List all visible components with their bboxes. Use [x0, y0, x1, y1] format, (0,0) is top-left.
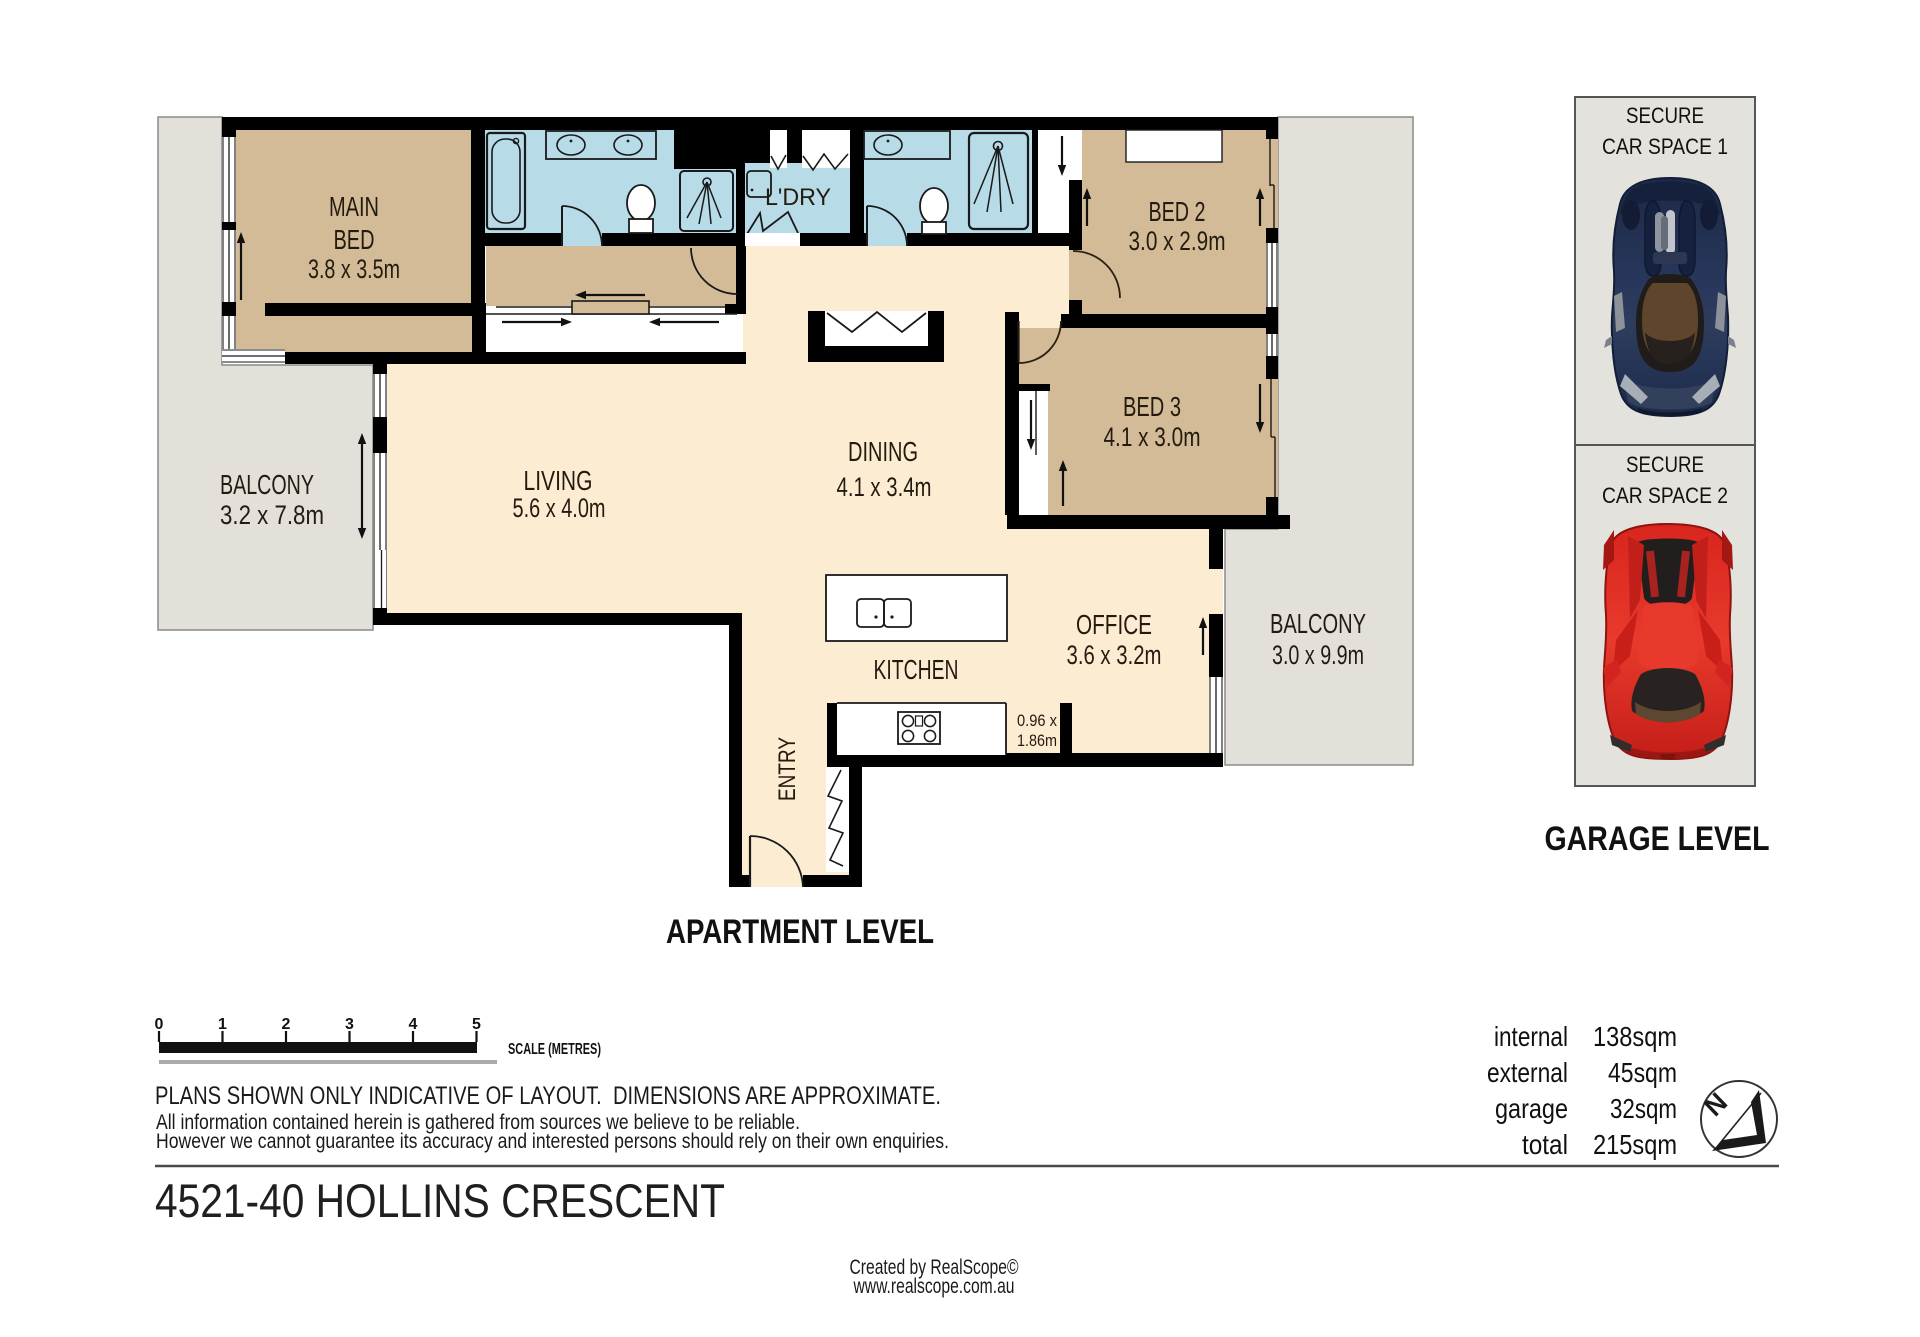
svg-text:3.0 x 2.9m: 3.0 x 2.9m	[1129, 226, 1226, 256]
svg-text:PLANS SHOWN ONLY INDICATIVE OF: PLANS SHOWN ONLY INDICATIVE OF LAYOUT. D…	[155, 1082, 941, 1110]
svg-text:internal: internal	[1494, 1021, 1568, 1052]
svg-text:BED: BED	[334, 224, 375, 255]
svg-text:garage: garage	[1495, 1093, 1568, 1124]
svg-text:2: 2	[282, 1016, 291, 1033]
svg-text:215sqm: 215sqm	[1593, 1129, 1677, 1160]
svg-text:ENTRY: ENTRY	[774, 737, 801, 801]
svg-text:3.0 x 9.9m: 3.0 x 9.9m	[1272, 640, 1364, 670]
svg-text:MAIN: MAIN	[329, 191, 379, 222]
svg-text:3.8 x 3.5m: 3.8 x 3.5m	[308, 254, 400, 284]
svg-text:3: 3	[345, 1016, 354, 1033]
svg-text:DINING: DINING	[848, 436, 918, 467]
svg-text:SCALE (METRES): SCALE (METRES)	[508, 1041, 601, 1058]
svg-text:www.realscope.com.au: www.realscope.com.au	[853, 1275, 1015, 1298]
svg-text:4: 4	[409, 1016, 418, 1033]
svg-text:4.1 x 3.0m: 4.1 x 3.0m	[1104, 422, 1201, 452]
svg-text:BALCONY: BALCONY	[1270, 608, 1366, 639]
svg-text:However we cannot guarantee it: However we cannot guarantee its accuracy…	[156, 1130, 949, 1153]
svg-text:APARTMENT LEVEL: APARTMENT LEVEL	[666, 913, 934, 951]
svg-text:SECURE: SECURE	[1626, 452, 1704, 477]
svg-text:external: external	[1487, 1057, 1568, 1088]
svg-text:CAR SPACE 2: CAR SPACE 2	[1602, 483, 1728, 508]
svg-text:KITCHEN: KITCHEN	[874, 654, 959, 685]
svg-text:1: 1	[218, 1016, 227, 1033]
svg-text:L'DRY: L'DRY	[765, 184, 831, 211]
svg-text:GARAGE LEVEL: GARAGE LEVEL	[1545, 820, 1770, 858]
svg-text:CAR SPACE 1: CAR SPACE 1	[1602, 134, 1728, 159]
svg-text:BALCONY: BALCONY	[220, 469, 314, 500]
svg-text:32sqm: 32sqm	[1610, 1093, 1677, 1124]
svg-text:BED 3: BED 3	[1123, 391, 1181, 422]
svg-text:total: total	[1522, 1129, 1568, 1160]
svg-text:3.2 x 7.8m: 3.2 x 7.8m	[220, 500, 324, 530]
svg-text:LIVING: LIVING	[524, 465, 593, 496]
svg-text:0: 0	[155, 1016, 164, 1033]
svg-text:5.6 x 4.0m: 5.6 x 4.0m	[513, 493, 606, 523]
svg-text:5: 5	[472, 1016, 481, 1033]
svg-text:SECURE: SECURE	[1626, 103, 1704, 128]
svg-text:0.96 x: 0.96 x	[1017, 711, 1057, 730]
svg-text:3.6 x 3.2m: 3.6 x 3.2m	[1067, 640, 1162, 670]
svg-text:45sqm: 45sqm	[1608, 1057, 1677, 1088]
svg-text:1.86m: 1.86m	[1017, 731, 1057, 750]
svg-text:OFFICE: OFFICE	[1076, 609, 1152, 640]
svg-text:BED 2: BED 2	[1149, 196, 1206, 227]
svg-text:4.1 x 3.4m: 4.1 x 3.4m	[837, 472, 932, 502]
svg-text:138sqm: 138sqm	[1593, 1021, 1677, 1052]
svg-text:4521-40 HOLLINS CRESCENT: 4521-40 HOLLINS CRESCENT	[155, 1174, 725, 1227]
